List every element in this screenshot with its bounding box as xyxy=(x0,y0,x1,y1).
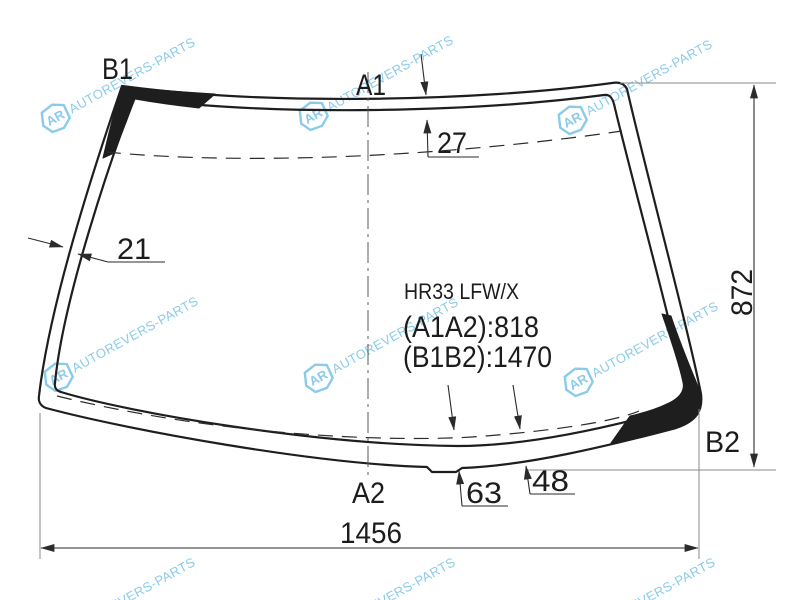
dim-63-value: 63 xyxy=(466,477,502,510)
bottom-band-arrow-right xyxy=(513,385,520,429)
dim-872-value: 872 xyxy=(726,269,759,316)
watermark xyxy=(36,549,200,600)
watermark xyxy=(556,549,720,600)
dim-63-arrow xyxy=(459,471,462,506)
label-a2: A2 xyxy=(352,477,385,510)
label-a1: A1 xyxy=(356,69,386,102)
dim-21-arrow-outer xyxy=(28,238,63,247)
windshield-diagram: AR AUTOREVERS-PARTS B xyxy=(0,0,800,600)
glass-inner-edge xyxy=(55,95,685,446)
dim-21-value: 21 xyxy=(117,233,151,266)
glass-dim-b1b2: (B1B2):1470 xyxy=(403,341,552,374)
dim-48-value: 48 xyxy=(532,465,569,498)
watermark xyxy=(39,288,203,395)
label-b1: B1 xyxy=(102,53,133,86)
glass-dim-a1a2: (A1A2):818 xyxy=(403,311,539,344)
diagram-canvas: AR AUTOREVERS-PARTS B xyxy=(0,0,800,600)
ceramic-band-top-left xyxy=(103,86,215,158)
dim-21-arrow-inner xyxy=(78,254,108,262)
label-b2: B2 xyxy=(705,426,740,459)
ceramic-limit-dashed-bottom xyxy=(57,396,639,439)
glass-model-code: HR33 LFW/X xyxy=(404,279,519,304)
dim-1456-value: 1456 xyxy=(340,517,402,550)
dim-27-value: 27 xyxy=(437,127,467,160)
bottom-band-arrow-left xyxy=(448,385,454,430)
watermark xyxy=(296,549,460,600)
ceramic-limit-dashed-top xyxy=(106,131,622,158)
